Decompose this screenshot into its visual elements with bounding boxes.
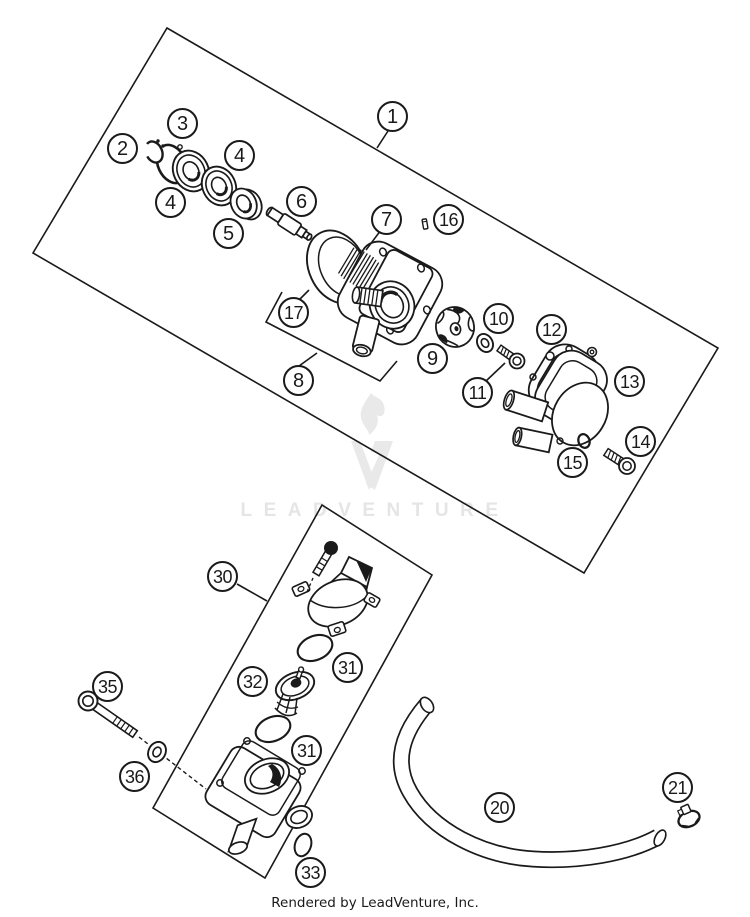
- parts-diagram-page: LEADVENTURE: [0, 0, 750, 917]
- pin-drawing-16: [422, 219, 428, 230]
- callout-21[interactable]: 21: [662, 772, 693, 803]
- callout-35[interactable]: 35: [92, 671, 123, 702]
- callout-7[interactable]: 7: [371, 204, 402, 235]
- callout-8[interactable]: 8: [283, 365, 314, 396]
- callout-15[interactable]: 15: [557, 447, 588, 478]
- callout-9[interactable]: 9: [417, 343, 448, 374]
- oring-drawing-31b: [252, 711, 294, 747]
- callout-13[interactable]: 13: [614, 366, 645, 397]
- callout-36[interactable]: 36: [119, 761, 150, 792]
- callout-31-a[interactable]: 31: [332, 652, 363, 683]
- callout-12[interactable]: 12: [536, 314, 567, 345]
- thermostat-drawing-32: [272, 666, 319, 715]
- hose-drawing-20: [401, 695, 668, 860]
- callout-2[interactable]: 2: [107, 133, 138, 164]
- bolt-drawing-11: [497, 345, 525, 368]
- thermostat-bolt-drawing: [313, 541, 338, 576]
- callout-11[interactable]: 11: [462, 377, 493, 408]
- callout-14[interactable]: 14: [625, 426, 656, 457]
- callout-32[interactable]: 32: [237, 666, 268, 697]
- oring-drawing-31a: [294, 630, 336, 666]
- oring-drawing-33: [292, 832, 314, 859]
- thermostat-housing-top-drawing: [292, 557, 381, 637]
- callout-4-a[interactable]: 4: [224, 140, 255, 171]
- pump-side-stub: [351, 287, 382, 307]
- callout-5[interactable]: 5: [213, 218, 244, 249]
- callout-30[interactable]: 30: [207, 561, 238, 592]
- callout-16[interactable]: 16: [433, 204, 464, 235]
- callout-4-b[interactable]: 4: [155, 187, 186, 218]
- callout-3[interactable]: 3: [167, 108, 198, 139]
- clamp-drawing-21: [673, 802, 702, 831]
- callout-1[interactable]: 1: [377, 101, 408, 132]
- washer-drawing-36: [145, 739, 170, 766]
- callout-10[interactable]: 10: [483, 303, 514, 334]
- callout-33[interactable]: 33: [295, 857, 326, 888]
- rendered-by-caption: Rendered by LeadVenture, Inc.: [271, 895, 479, 911]
- callout-17[interactable]: 17: [278, 297, 309, 328]
- callout-31-b[interactable]: 31: [291, 735, 322, 766]
- callout-20[interactable]: 20: [484, 792, 515, 823]
- washer-drawing-10: [474, 331, 496, 355]
- callout-6[interactable]: 6: [286, 186, 317, 217]
